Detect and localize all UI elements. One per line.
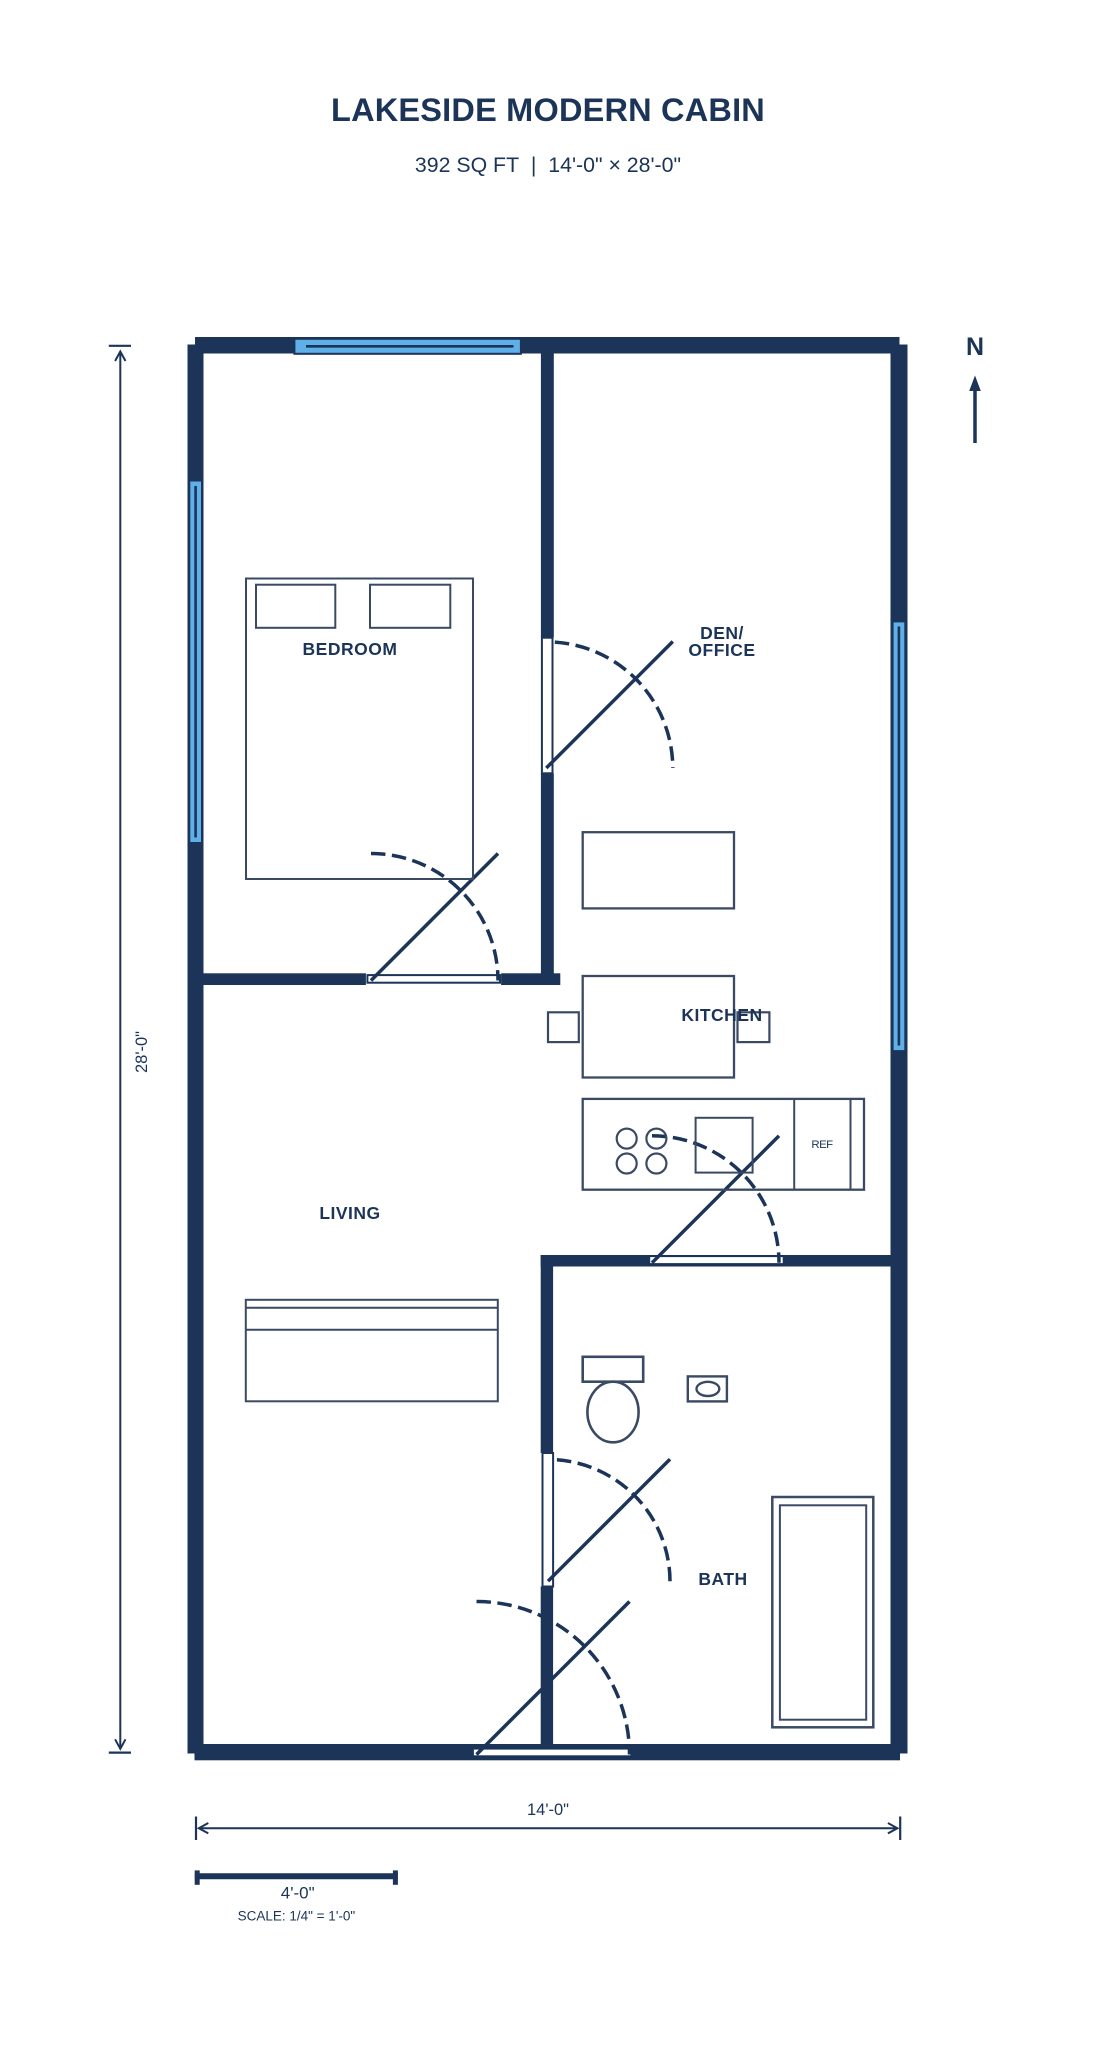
svg-text:SCALE: 1/4" = 1'-0": SCALE: 1/4" = 1'-0" <box>238 1909 356 1924</box>
svg-text:14'-0": 14'-0" <box>527 1801 569 1819</box>
svg-text:N: N <box>966 333 984 361</box>
svg-text:OFFICE: OFFICE <box>688 640 755 660</box>
svg-text:LIVING: LIVING <box>319 1203 380 1223</box>
svg-text:BATH: BATH <box>698 1569 747 1589</box>
svg-text:LAKESIDE MODERN CABIN: LAKESIDE MODERN CABIN <box>331 92 765 128</box>
svg-text:4'-0": 4'-0" <box>281 1884 315 1903</box>
svg-text:BEDROOM: BEDROOM <box>303 639 398 659</box>
svg-text:392 SQ FT | 14'-0" × 28'-0": 392 SQ FT | 14'-0" × 28'-0" <box>415 153 681 177</box>
svg-text:28'-0": 28'-0" <box>133 1031 151 1073</box>
svg-text:KITCHEN: KITCHEN <box>681 1005 762 1025</box>
svg-text:REF: REF <box>811 1139 833 1151</box>
